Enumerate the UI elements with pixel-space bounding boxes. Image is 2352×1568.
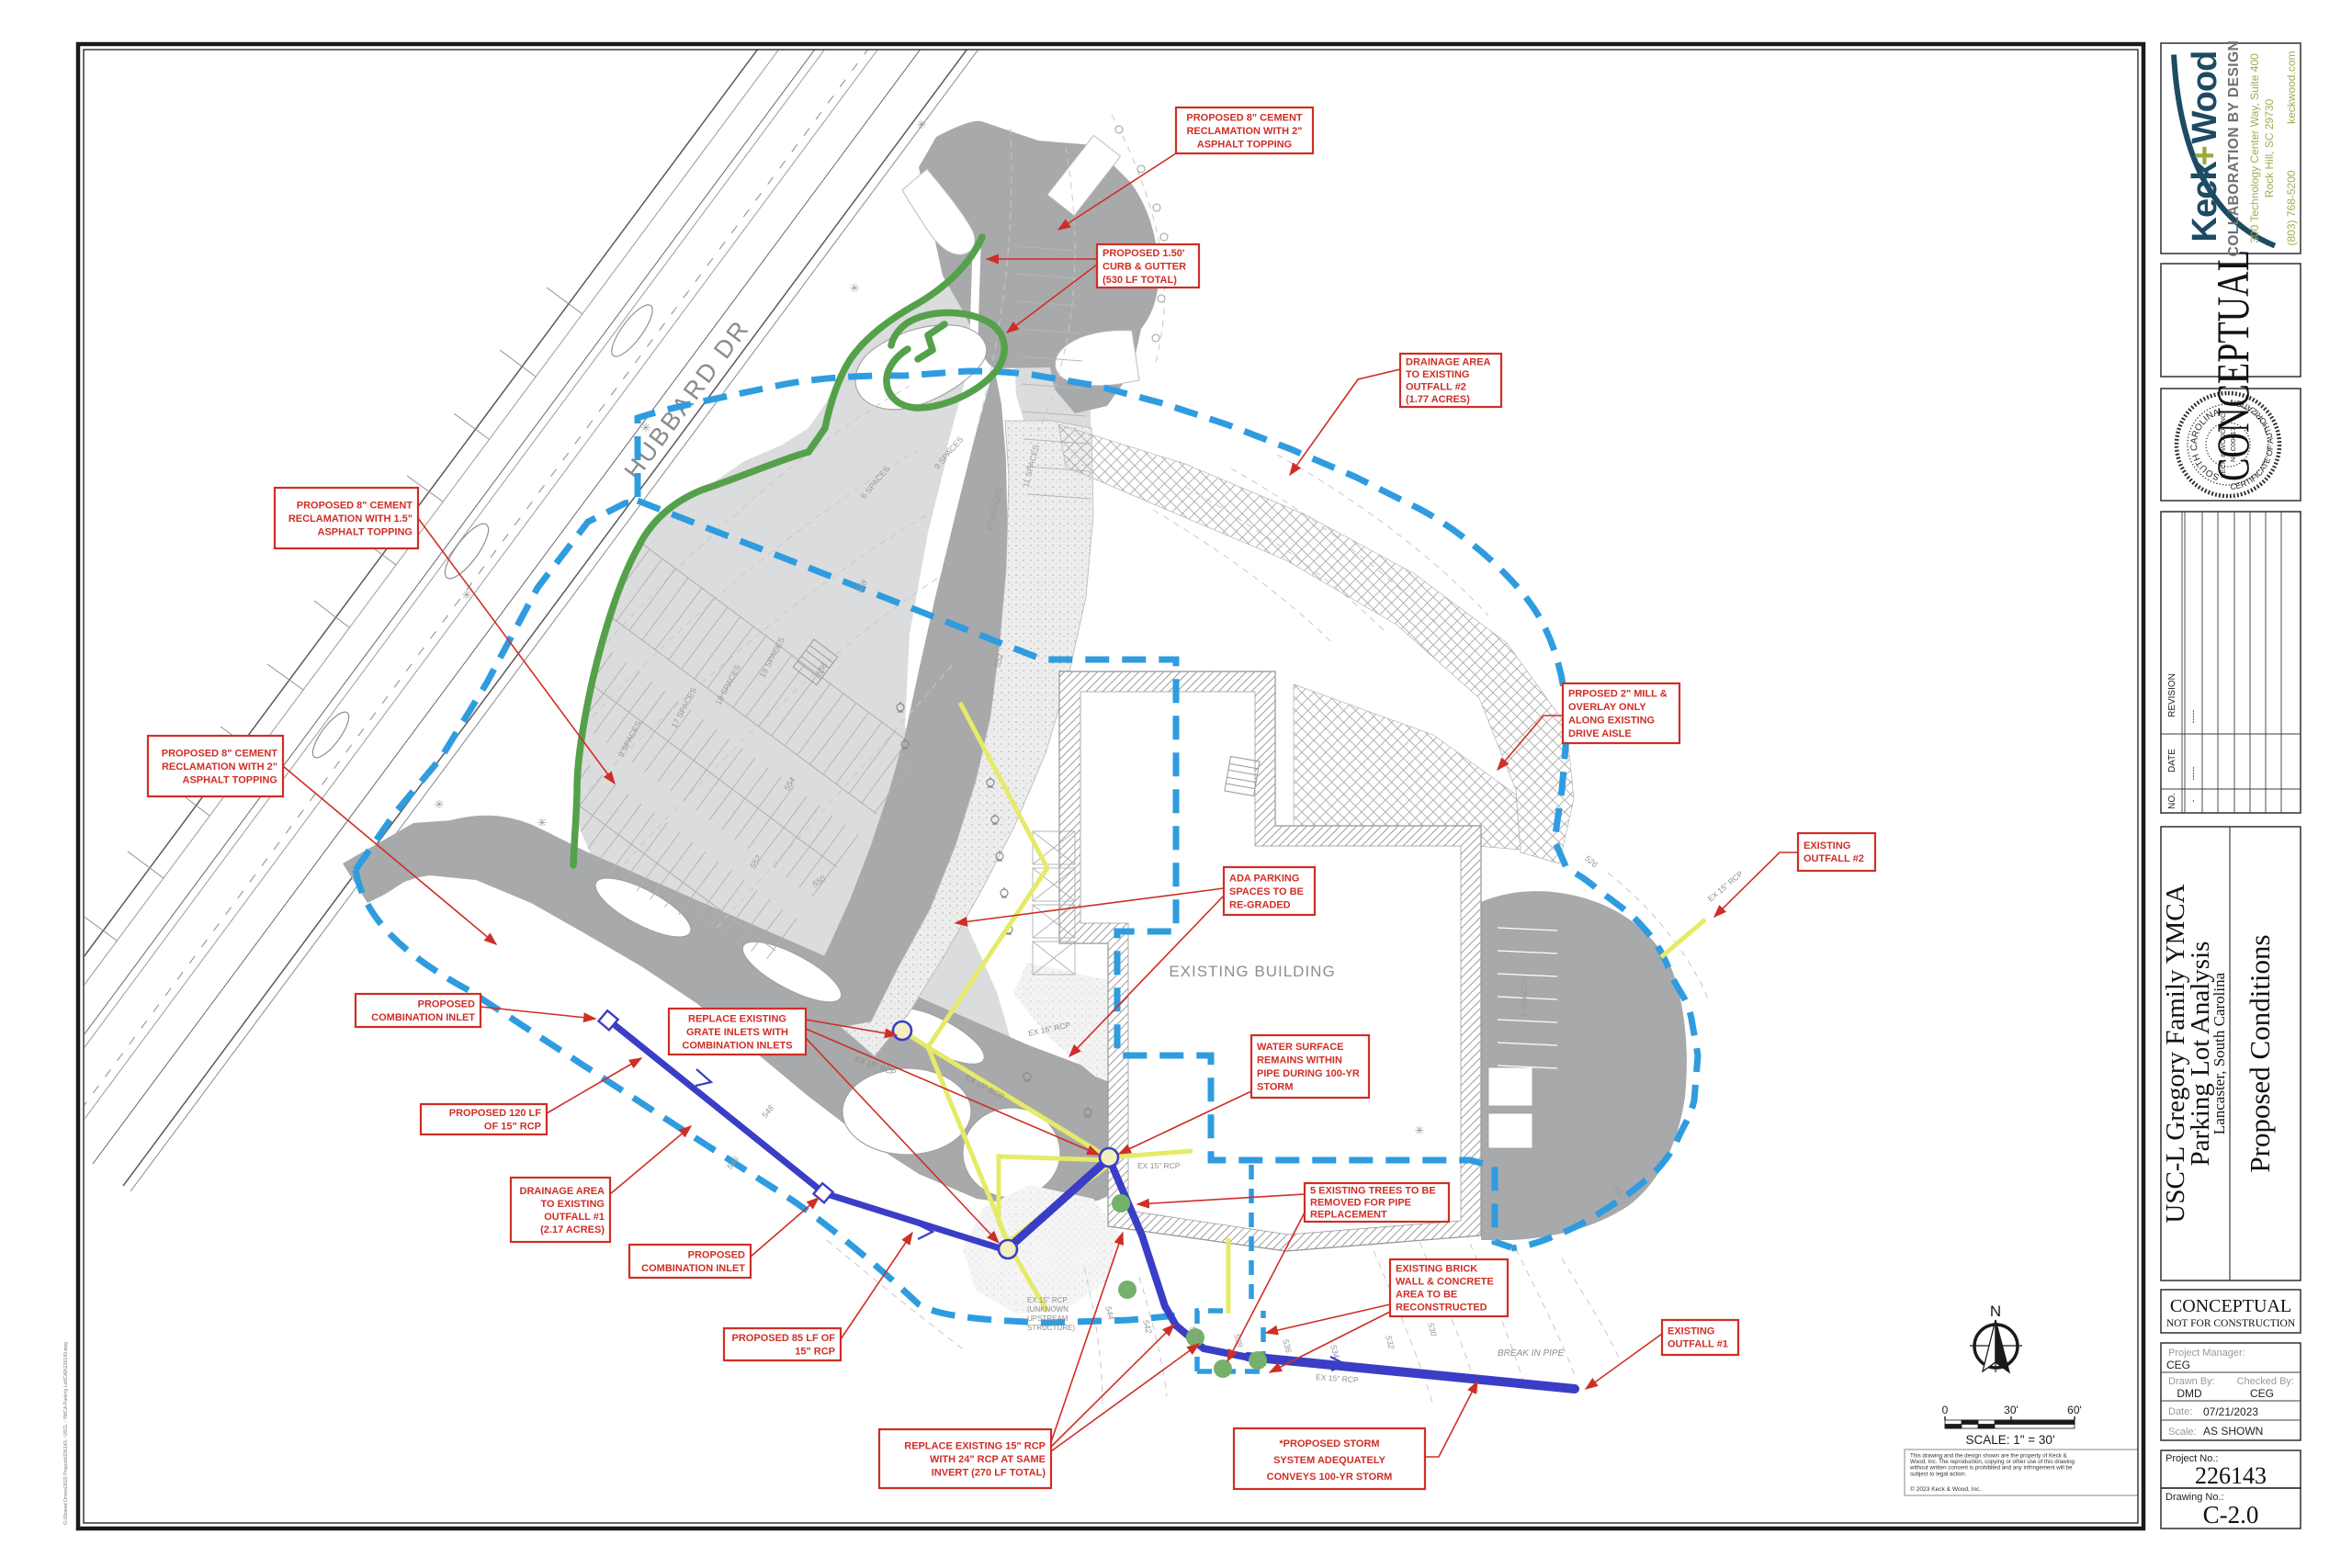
svg-text:Checked By:: Checked By: (2237, 1376, 2294, 1387)
svg-text:N: N (1990, 1303, 2001, 1320)
svg-text:-----: ----- (2188, 767, 2198, 781)
svg-text:CONCEPTUAL: CONCEPTUAL (2207, 250, 2258, 481)
svg-text:07/21/2023: 07/21/2023 (2203, 1405, 2258, 1418)
svg-text:✳: ✳ (641, 421, 651, 434)
svg-text:Rock Hill, SC 29730: Rock Hill, SC 29730 (2263, 98, 2276, 197)
svg-text:Keck: Keck (2186, 161, 2224, 243)
svg-text:CEG: CEG (2166, 1359, 2190, 1371)
svg-text:Drawn By:: Drawn By: (2168, 1376, 2215, 1387)
svg-text:COMBINATION INLET: COMBINATION INLET (641, 1263, 745, 1274)
svg-text:EX 15" RCP: EX 15" RCP (1137, 1161, 1181, 1170)
svg-text:SPACES TO BE: SPACES TO BE (1229, 886, 1304, 897)
svg-text:(803) 768-5200: (803) 768-5200 (2285, 170, 2298, 245)
svg-text:REVISION: REVISION (2167, 673, 2177, 717)
svg-text:AREA TO BE: AREA TO BE (1396, 1290, 1457, 1301)
svg-text:G:\Shared Drives\2022 Projects: G:\Shared Drives\2022 Projects\226143 - … (63, 1342, 69, 1525)
svg-text:PROPOSED 1.50': PROPOSED 1.50' (1102, 248, 1185, 259)
svg-text:NOT FOR CONSTRUCTION: NOT FOR CONSTRUCTION (2166, 1318, 2296, 1329)
svg-text:OF 15" RCP: OF 15" RCP (484, 1122, 541, 1133)
svg-text:DATE: DATE (2167, 749, 2177, 773)
svg-text:COMBINATION INLETS: COMBINATION INLETS (682, 1040, 792, 1051)
svg-text:EXISTING BRICK: EXISTING BRICK (1396, 1264, 1477, 1275)
svg-text:60': 60' (2067, 1404, 2082, 1416)
svg-text:(2.17 ACRES): (2.17 ACRES) (540, 1224, 605, 1235)
svg-text:-----: ----- (2188, 710, 2198, 724)
svg-text:EXISTING: EXISTING (1804, 840, 1850, 852)
svg-text:-: - (2188, 800, 2198, 803)
svg-text:SCALE: 1" = 30': SCALE: 1" = 30' (1965, 1433, 2054, 1447)
svg-text:Project Manager:: Project Manager: (2168, 1348, 2245, 1359)
svg-text:✳: ✳ (435, 797, 445, 811)
svg-text:CONVEYS 100-YR STORM: CONVEYS 100-YR STORM (1267, 1472, 1393, 1483)
svg-text:OUTFALL #1: OUTFALL #1 (544, 1212, 605, 1223)
svg-text:REMOVED FOR PIPE: REMOVED FOR PIPE (1310, 1198, 1411, 1209)
svg-text:OVERLAY ONLY: OVERLAY ONLY (1568, 702, 1646, 713)
svg-text:UPSTREAM: UPSTREAM (1027, 1314, 1069, 1323)
svg-text:COMBINATION INLET: COMBINATION INLET (371, 1012, 475, 1023)
svg-text:0: 0 (1942, 1404, 1949, 1416)
svg-text:OUTFALL #2: OUTFALL #2 (1804, 853, 1864, 864)
svg-text:REPLACE EXISTING: REPLACE EXISTING (688, 1013, 786, 1024)
svg-text:PROPOSED: PROPOSED (688, 1250, 745, 1261)
svg-text:PRPOSED 2" MILL &: PRPOSED 2" MILL & (1568, 689, 1668, 700)
svg-text:PROPOSED 8" CEMENT: PROPOSED 8" CEMENT (162, 748, 278, 759)
svg-text:RECONSTRUCTED: RECONSTRUCTED (1396, 1303, 1487, 1314)
svg-text:STRUCTURE): STRUCTURE) (1027, 1324, 1075, 1332)
svg-text:RE-GRADED: RE-GRADED (1229, 899, 1291, 910)
svg-text:300 Technology Center Way, Sui: 300 Technology Center Way, Suite 400 (2248, 53, 2261, 243)
svg-text:DRAINAGE AREA: DRAINAGE AREA (520, 1186, 605, 1197)
svg-text:5 EXISTING TREES TO BE: 5 EXISTING TREES TO BE (1310, 1186, 1436, 1197)
svg-text:WITH 24" RCP AT SAME: WITH 24" RCP AT SAME (930, 1454, 1046, 1465)
svg-text:subject to legal action.: subject to legal action. (1910, 1471, 1967, 1477)
svg-text:PROPOSED 8" CEMENT: PROPOSED 8" CEMENT (297, 500, 413, 511)
svg-text:Scale:: Scale: (2168, 1427, 2197, 1438)
svg-text:DRIVE AISLE: DRIVE AISLE (1568, 728, 1632, 739)
svg-text:ASPHALT TOPPING: ASPHALT TOPPING (183, 774, 278, 785)
svg-text:PROPOSED 8" CEMENT: PROPOSED 8" CEMENT (1186, 112, 1303, 123)
svg-text:OUTFALL #1: OUTFALL #1 (1668, 1339, 1728, 1350)
svg-text:TO EXISTING: TO EXISTING (541, 1199, 605, 1210)
svg-text:C-2.0: C-2.0 (2203, 1501, 2259, 1529)
svg-text:ASPHALT TOPPING: ASPHALT TOPPING (318, 526, 413, 537)
svg-text:WATER SURFACE: WATER SURFACE (1257, 1042, 1344, 1053)
svg-text:✳: ✳ (850, 281, 860, 295)
svg-text:ADA PARKING: ADA PARKING (1229, 873, 1299, 884)
svg-text:EXISTING: EXISTING (1668, 1326, 1714, 1337)
svg-text:CURB & GUTTER: CURB & GUTTER (1102, 261, 1186, 272)
svg-text:ALONG EXISTING: ALONG EXISTING (1568, 716, 1655, 727)
svg-text:REMAINS WITHIN: REMAINS WITHIN (1257, 1055, 1342, 1066)
svg-text:✳: ✳ (917, 118, 927, 131)
svg-text:Wood: Wood (2186, 51, 2224, 144)
svg-text:DMD: DMD (2177, 1387, 2202, 1400)
svg-text:© 2023 Keck & Wood, Inc.: © 2023 Keck & Wood, Inc. (1910, 1485, 1981, 1493)
svg-text:NO.: NO. (2167, 793, 2177, 809)
svg-text:keckwood.com: keckwood.com (2285, 51, 2298, 124)
svg-text:CEG: CEG (2250, 1387, 2274, 1400)
svg-text:AS SHOWN: AS SHOWN (2203, 1425, 2263, 1438)
svg-text:REPLACE EXISTING 15" RCP: REPLACE EXISTING 15" RCP (904, 1440, 1046, 1451)
svg-text:RECLAMATION WITH 2": RECLAMATION WITH 2" (1186, 126, 1302, 137)
svg-text:✳: ✳ (537, 816, 548, 829)
svg-text:EXISTING BUILDING: EXISTING BUILDING (1169, 963, 1335, 980)
svg-text:✳: ✳ (1415, 1123, 1425, 1137)
svg-text:15" RCP: 15" RCP (795, 1347, 835, 1358)
svg-text:COLLABORATION BY DESIGN: COLLABORATION BY DESIGN (2226, 40, 2242, 257)
svg-text:CONCEPTUAL: CONCEPTUAL (2170, 1296, 2291, 1316)
svg-text:30': 30' (2004, 1404, 2018, 1416)
svg-text:ASPHALT TOPPING: ASPHALT TOPPING (1197, 139, 1293, 150)
svg-text:REPLACEMENT: REPLACEMENT (1310, 1210, 1387, 1221)
svg-text:TO EXISTING: TO EXISTING (1406, 369, 1469, 380)
svg-text:OUTFALL #2: OUTFALL #2 (1406, 382, 1466, 393)
svg-text:PROPOSED 85 LF OF: PROPOSED 85 LF OF (732, 1333, 836, 1344)
svg-text:WALL & CONCRETE: WALL & CONCRETE (1396, 1277, 1494, 1288)
svg-text:Date:: Date: (2168, 1406, 2192, 1417)
svg-text:GRATE INLETS WITH: GRATE INLETS WITH (686, 1027, 788, 1038)
svg-text:6 SPACES: 6 SPACES (1520, 976, 1529, 1016)
svg-text:DRAINAGE AREA: DRAINAGE AREA (1406, 357, 1491, 368)
svg-text:PROPOSED 120 LF: PROPOSED 120 LF (449, 1108, 542, 1119)
svg-text:SYSTEM ADEQUATELY: SYSTEM ADEQUATELY (1273, 1455, 1385, 1466)
svg-text:PIPE DURING 100-YR: PIPE DURING 100-YR (1257, 1068, 1360, 1079)
svg-text:RECLAMATION WITH 1.5": RECLAMATION WITH 1.5" (288, 513, 413, 525)
svg-text:+: + (2186, 145, 2224, 165)
svg-text:(530 LF TOTAL): (530 LF TOTAL) (1102, 275, 1177, 286)
svg-text:(1.77 ACRES): (1.77 ACRES) (1406, 394, 1470, 405)
svg-text:EX 15" RCP: EX 15" RCP (1027, 1296, 1068, 1304)
svg-text:BREAK IN PIPE: BREAK IN PIPE (1498, 1348, 1565, 1359)
svg-text:(UNKNOWN: (UNKNOWN (1027, 1305, 1069, 1314)
svg-text:PROPOSED: PROPOSED (418, 999, 475, 1010)
svg-text:Lancaster, South Carolina: Lancaster, South Carolina (2211, 972, 2228, 1134)
svg-text:✳: ✳ (462, 588, 472, 602)
svg-text:*PROPOSED STORM: *PROPOSED STORM (1279, 1438, 1379, 1450)
svg-text:INVERT (270 LF TOTAL): INVERT (270 LF TOTAL) (932, 1467, 1046, 1478)
svg-text:Proposed Conditions: Proposed Conditions (2244, 934, 2276, 1172)
svg-text:RECLAMATION WITH 2": RECLAMATION WITH 2" (162, 761, 277, 773)
svg-text:STORM: STORM (1257, 1082, 1294, 1093)
svg-text:226143: 226143 (2195, 1462, 2267, 1489)
